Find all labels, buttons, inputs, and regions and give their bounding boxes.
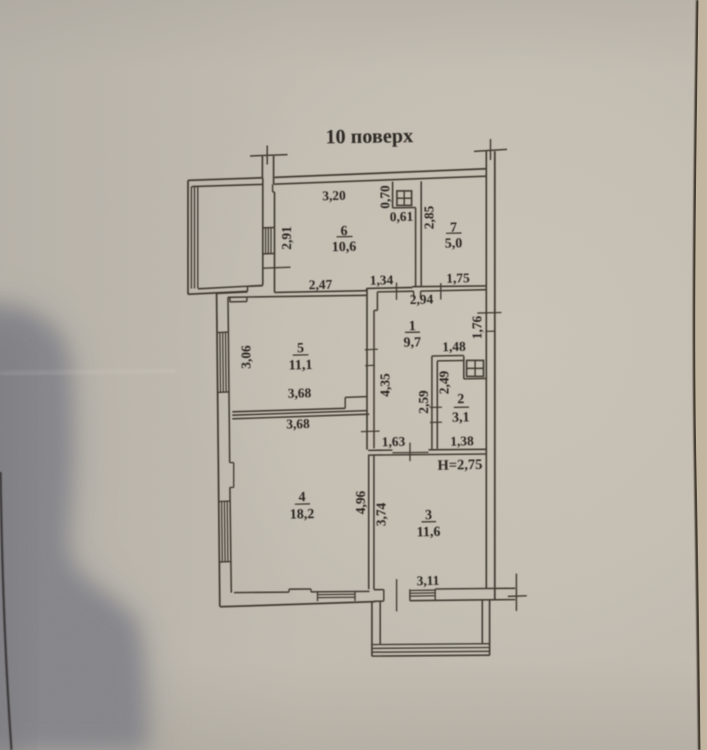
svg-text:3,06: 3,06 bbox=[238, 345, 253, 369]
svg-text:1,75: 1,75 bbox=[446, 270, 470, 286]
svg-text:2,94: 2,94 bbox=[410, 292, 434, 308]
svg-text:1,76: 1,76 bbox=[469, 315, 484, 339]
svg-text:1,63: 1,63 bbox=[382, 434, 406, 450]
svg-text:10 поверх: 10 поверх bbox=[325, 125, 413, 148]
svg-text:2,85: 2,85 bbox=[421, 205, 436, 229]
svg-text:H=2,75: H=2,75 bbox=[437, 457, 482, 474]
svg-text:2,47: 2,47 bbox=[309, 277, 333, 293]
svg-text:5,0: 5,0 bbox=[445, 236, 463, 251]
svg-text:2,91: 2,91 bbox=[279, 226, 294, 249]
svg-text:1,34: 1,34 bbox=[370, 272, 394, 288]
svg-text:2,49: 2,49 bbox=[436, 370, 451, 394]
svg-text:11,1: 11,1 bbox=[288, 358, 312, 374]
svg-text:4,35: 4,35 bbox=[377, 373, 392, 397]
svg-text:3: 3 bbox=[425, 508, 432, 523]
svg-text:18,2: 18,2 bbox=[290, 507, 315, 523]
svg-text:3,1: 3,1 bbox=[452, 410, 470, 425]
svg-text:0,70: 0,70 bbox=[377, 185, 392, 209]
svg-text:10,6: 10,6 bbox=[332, 240, 357, 256]
svg-text:2: 2 bbox=[457, 392, 464, 407]
svg-text:3,68: 3,68 bbox=[286, 416, 310, 432]
svg-text:9,7: 9,7 bbox=[403, 335, 421, 350]
svg-text:4: 4 bbox=[298, 490, 305, 505]
svg-text:0,61: 0,61 bbox=[390, 209, 414, 225]
svg-text:2,59: 2,59 bbox=[416, 390, 431, 414]
svg-text:4,96: 4,96 bbox=[353, 490, 368, 514]
svg-text:5: 5 bbox=[297, 341, 304, 356]
svg-text:3,20: 3,20 bbox=[322, 188, 346, 204]
svg-text:3,74: 3,74 bbox=[373, 502, 388, 526]
svg-text:3,68: 3,68 bbox=[288, 385, 312, 401]
svg-text:1,38: 1,38 bbox=[450, 433, 474, 449]
svg-text:1,48: 1,48 bbox=[442, 339, 466, 355]
svg-text:11,6: 11,6 bbox=[416, 525, 440, 541]
svg-text:3,11: 3,11 bbox=[416, 573, 439, 589]
